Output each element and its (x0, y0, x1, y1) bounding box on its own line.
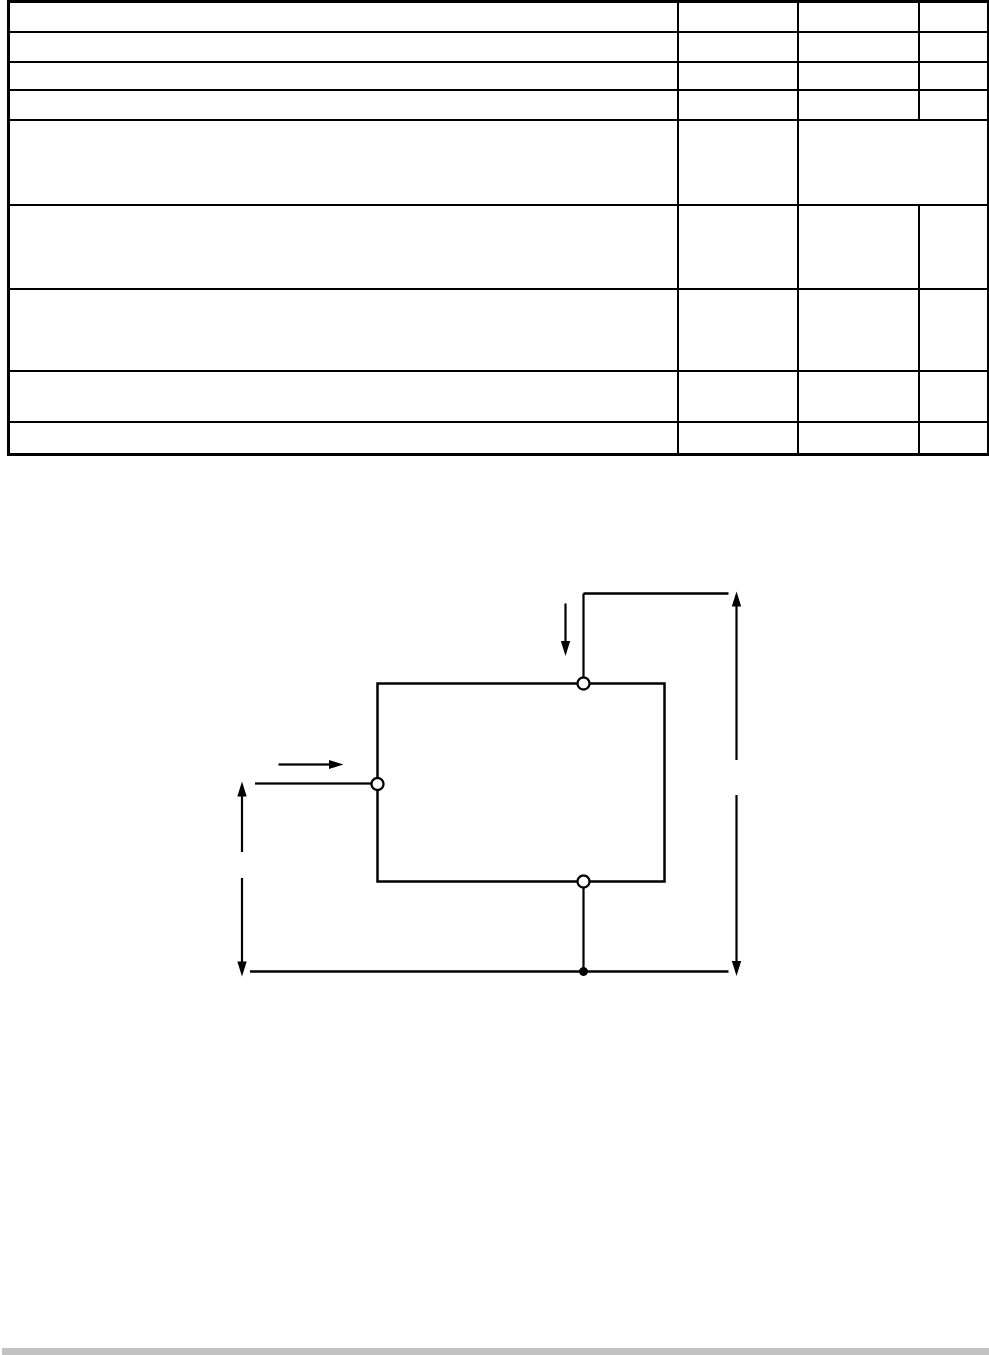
table-row (9, 90, 989, 120)
table-cell (678, 120, 798, 205)
table-cell (9, 205, 678, 289)
table-cell (798, 62, 919, 90)
table-cell (678, 422, 798, 455)
table-cell-merged (798, 120, 989, 205)
table-cell (798, 205, 919, 289)
table-row (9, 32, 989, 62)
table-row (9, 205, 989, 289)
table-cell (798, 2, 919, 33)
left-dimension-down-arrowhead-icon (237, 962, 246, 977)
table-cell (678, 205, 798, 289)
horizontal-scrollbar-track[interactable] (2, 1348, 989, 1355)
table-cell (9, 289, 678, 371)
spec-table (7, 0, 989, 456)
left-dimension-up-arrowhead-icon (237, 782, 246, 797)
current-down-arrowhead-icon (561, 641, 570, 656)
table-row (9, 2, 989, 33)
table-cell (798, 289, 919, 371)
table-row (9, 371, 989, 422)
table-row (9, 422, 989, 455)
right-dimension-down-arrowhead-icon (732, 961, 741, 976)
table-cell (9, 90, 678, 120)
test-circuit-diagram (225, 580, 755, 985)
table-row (9, 289, 989, 371)
table-cell (9, 371, 678, 422)
table-row (9, 120, 989, 205)
table-cell (919, 371, 989, 422)
table-row (9, 62, 989, 90)
table-cell (919, 2, 989, 33)
input-right-arrowhead-icon (329, 760, 344, 769)
table-cell (678, 2, 798, 33)
left-terminal (372, 778, 384, 790)
table-cell (798, 371, 919, 422)
right-dimension-up-arrowhead-icon (732, 592, 741, 607)
junction-dot (579, 967, 588, 976)
table-cell (919, 422, 989, 455)
table-cell (798, 32, 919, 62)
table-cell (678, 62, 798, 90)
document-page: { "page": { "background_color": "#ffffff… (0, 0, 989, 1355)
table-cell (919, 32, 989, 62)
device-under-test-box (378, 684, 665, 882)
table-cell (678, 371, 798, 422)
table-cell (678, 90, 798, 120)
table-cell (9, 2, 678, 33)
table-cell (798, 90, 919, 120)
table-cell (9, 422, 678, 455)
table-cell (678, 289, 798, 371)
table-cell (678, 32, 798, 62)
table-cell (9, 62, 678, 90)
table-cell (798, 422, 919, 455)
table-cell (9, 32, 678, 62)
bottom-terminal (578, 876, 590, 888)
table-cell (919, 289, 989, 371)
top-terminal (578, 678, 590, 690)
table-cell (919, 62, 989, 90)
table-cell (919, 205, 989, 289)
table-cell (919, 90, 989, 120)
table-cell (9, 120, 678, 205)
